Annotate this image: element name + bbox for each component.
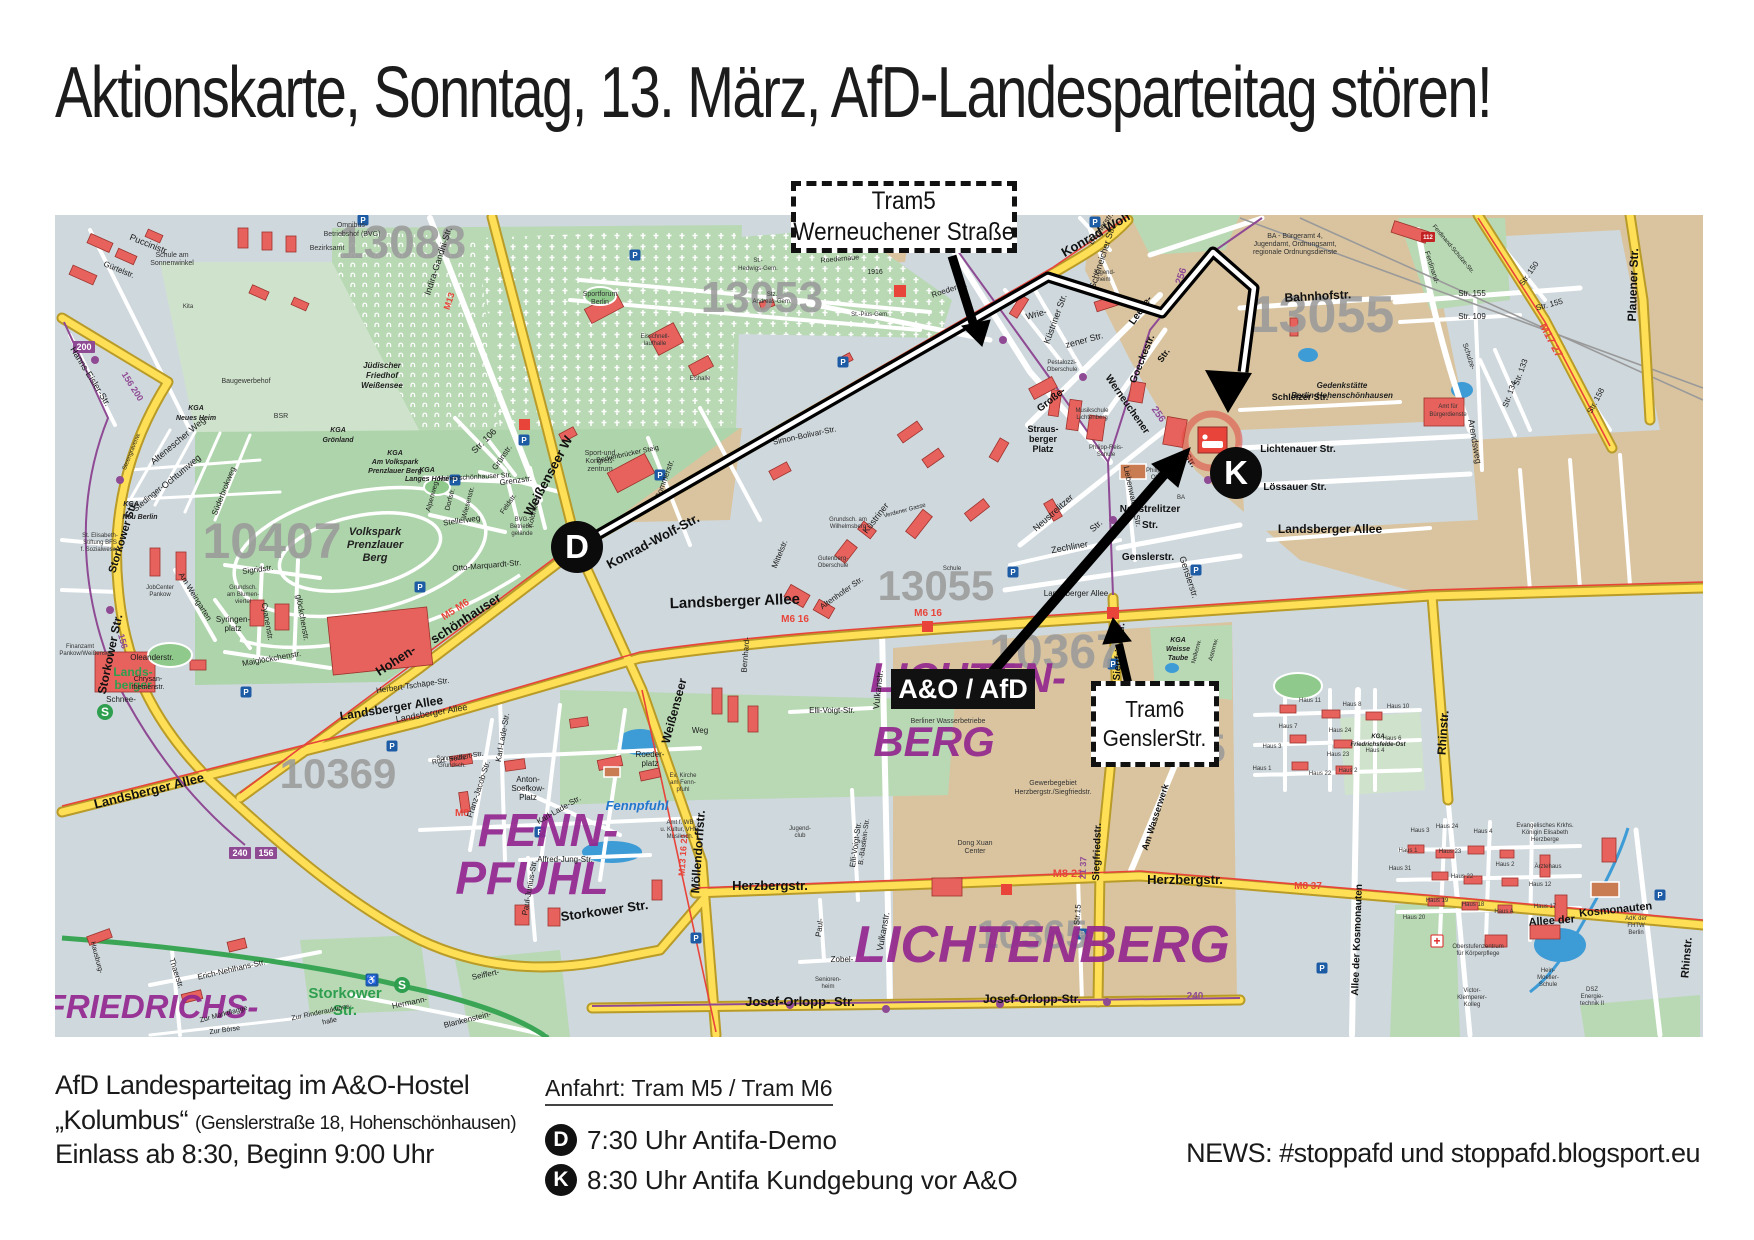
svg-text:Prenzlauer: Prenzlauer [347, 539, 404, 551]
svg-text:Weißensee: Weißensee [361, 381, 403, 390]
svg-text:am Fenn-: am Fenn- [670, 780, 696, 786]
svg-text:Str. 155: Str. 155 [1458, 289, 1486, 298]
svg-text:Taube: Taube [1168, 655, 1188, 662]
svg-text:Weg: Weg [692, 726, 708, 735]
action-map-poster: Aktionskarte, Sonntag, 13. März, AfD-Lan… [0, 0, 1754, 1240]
svg-text:Lichtenauer Str.: Lichtenauer Str. [1260, 444, 1336, 455]
svg-text:Neu Berlin: Neu Berlin [122, 514, 157, 521]
svg-text:Oleanderstr.: Oleanderstr. [130, 653, 174, 662]
svg-text:Pankow: Pankow [149, 592, 171, 598]
svg-text:BERG: BERG [873, 718, 994, 765]
legend-row-kundgebung: K 8:30 Uhr Antifa Kundgebung vor A&O [545, 1164, 1018, 1196]
svg-text:Josef-Orlopp- Str.: Josef-Orlopp- Str. [745, 994, 855, 1009]
svg-text:Pankow/Weißensee: Pankow/Weißensee [59, 651, 113, 657]
svg-text:240: 240 [1187, 991, 1204, 1002]
svg-text:Str.15: Str.15 [1072, 903, 1083, 925]
svg-text:Haus 10: Haus 10 [1387, 704, 1410, 710]
svg-text:Soefkow-: Soefkow- [511, 784, 545, 793]
svg-text:JobCenter: JobCenter [146, 585, 174, 591]
svg-text:Schule: Schule [1539, 982, 1558, 988]
hostel-icon [1198, 427, 1227, 453]
svg-text:Eishalle: Eishalle [689, 376, 711, 382]
route-heading: Anfahrt: Tram M5 / Tram M6 [545, 1075, 833, 1106]
venue-info-line3: Einlass ab 8:30, Beginn 9:00 Uhr [55, 1137, 516, 1172]
svg-text:Evangelisches Krkhs.: Evangelisches Krkhs. [1516, 823, 1574, 829]
svg-text:Finanzamt: Finanzamt [66, 644, 94, 650]
svg-text:Stiftung BFS: Stiftung BFS [83, 540, 117, 546]
venue-info-line2: „Kolumbus“ (Genslerstraße 18, Hohenschön… [55, 1103, 516, 1138]
svg-text:BSR: BSR [274, 413, 288, 420]
venue-info: AfD Landesparteitag im A&O-Hostel „Kolum… [55, 1068, 516, 1172]
svg-text:Musiksch.: Musiksch. [667, 834, 694, 840]
svg-text:Center: Center [964, 848, 986, 855]
svg-text:Anton-: Anton- [516, 775, 540, 784]
svg-text:Haus 8: Haus 8 [1342, 702, 1362, 708]
svg-text:platz: platz [642, 759, 659, 768]
svg-text:Syringen-: Syringen- [216, 615, 251, 624]
svg-text:KGA: KGA [387, 450, 403, 457]
svg-text:gelände: gelände [511, 531, 533, 537]
svg-text:Haus 4: Haus 4 [1473, 829, 1493, 835]
svg-text:am Blumen-: am Blumen- [227, 592, 259, 598]
svg-text:S: S [101, 705, 109, 719]
route-legend: Anfahrt: Tram M5 / Tram M6 D 7:30 Uhr An… [545, 1072, 1018, 1196]
svg-text:Sonnenwinkel: Sonnenwinkel [150, 260, 194, 267]
news-line: NEWS: #stoppafd und stoppafd.blogsport.e… [1186, 1138, 1700, 1169]
svg-text:Landsberger Allee: Landsberger Allee [1278, 522, 1383, 536]
svg-text:Haus 6: Haus 6 [1382, 736, 1402, 742]
svg-text:Philipp-Reis-: Philipp-Reis- [1089, 445, 1123, 451]
svg-text:M6 16: M6 16 [781, 614, 809, 625]
svg-text:P: P [243, 688, 249, 697]
svg-text:Oberschule: Oberschule [818, 563, 849, 569]
svg-text:Volkspark: Volkspark [349, 526, 402, 538]
svg-text:für Körperpflege: für Körperpflege [1456, 951, 1500, 957]
marker-K: K [1210, 447, 1262, 499]
svg-text:Grönland: Grönland [322, 437, 354, 444]
svg-text:Hein-: Hein- [1541, 968, 1555, 974]
svg-text:technik II: technik II [1580, 1001, 1604, 1007]
svg-text:BVG-: BVG- [515, 517, 530, 523]
svg-text:Königin Elisabeth: Königin Elisabeth [1522, 830, 1568, 836]
tram5-stop: Werneuchener Straße [794, 217, 1015, 248]
svg-text:1916: 1916 [867, 269, 883, 276]
svg-text:Haus 23: Haus 23 [1327, 752, 1350, 758]
svg-text:Fennpfuhl: Fennpfuhl [606, 798, 669, 813]
svg-text:f. Sozialwesen: f. Sozialwesen [81, 547, 120, 553]
svg-text:LICHTENBERG: LICHTENBERG [854, 916, 1230, 974]
svg-text:Siegfriedstr.: Siegfriedstr. [1091, 823, 1104, 881]
svg-text:Haus A: Haus A [1494, 909, 1513, 915]
svg-text:Musikschule: Musikschule [1075, 408, 1109, 414]
demo-marker-icon: D [545, 1124, 577, 1156]
svg-text:Haus 3: Haus 3 [1410, 828, 1430, 834]
svg-text:Elli-Voigt-Str.: Elli-Voigt-Str. [809, 706, 855, 715]
svg-text:P: P [840, 358, 846, 367]
svg-text:Oberstufenzentrum: Oberstufenzentrum [1452, 944, 1503, 950]
svg-text:Friedhof: Friedhof [366, 371, 399, 380]
svg-text:platz: platz [225, 624, 242, 633]
svg-text:Oberschule: Oberschule [1047, 367, 1078, 373]
svg-text:Hedwigs-Gem.: Hedwigs-Gem. [738, 266, 778, 272]
svg-text:heim: heim [1097, 277, 1110, 283]
svg-text:Haus 18: Haus 18 [1462, 902, 1485, 908]
svg-text:Berlin: Berlin [591, 299, 609, 306]
svg-text:themenstr.: themenstr. [132, 684, 165, 691]
svg-text:Jugend-: Jugend- [789, 826, 811, 832]
svg-text:St.-Pius-Gem.: St.-Pius-Gem. [851, 312, 889, 318]
svg-text:Plauener Str.: Plauener Str. [1625, 248, 1642, 322]
svg-text:Berliner Wasserbetriebe: Berliner Wasserbetriebe [911, 718, 986, 725]
tram5-line: Tram5 [872, 186, 936, 217]
svg-text:10407: 10407 [202, 513, 341, 569]
svg-text:♿: ♿ [366, 974, 377, 985]
svg-text:Haus 17: Haus 17 [1534, 904, 1557, 910]
svg-text:Haus 12: Haus 12 [1529, 882, 1552, 888]
svg-text:Grundsch.: Grundsch. [229, 585, 257, 591]
svg-text:St.-: St.- [753, 258, 762, 264]
svg-text:Omnibus-: Omnibus- [337, 222, 368, 229]
svg-text:P: P [521, 436, 527, 445]
legend-row-demo: D 7:30 Uhr Antifa-Demo [545, 1124, 1018, 1156]
svg-text:Platz: Platz [519, 793, 537, 802]
svg-text:+: + [1433, 934, 1440, 948]
svg-text:Sportforum: Sportforum [583, 291, 618, 298]
svg-text:Haus 3: Haus 3 [1262, 744, 1282, 750]
svg-text:club: club [794, 833, 806, 839]
svg-text:Weisse: Weisse [1166, 646, 1190, 653]
svg-text:Victor-: Victor- [1463, 988, 1480, 994]
svg-text:Betriebs-: Betriebs- [510, 524, 534, 530]
svg-text:Neues Heim: Neues Heim [176, 415, 216, 422]
svg-text:Schule: Schule [943, 566, 962, 572]
svg-text:D: D [565, 528, 589, 565]
svg-text:Zobel-: Zobel- [831, 955, 854, 964]
svg-text:u. Kultur, VHS,: u. Kultur, VHS, [660, 827, 700, 833]
venue-label: A&O / AfD [891, 669, 1035, 709]
svg-text:Bezirksamt: Bezirksamt [310, 245, 345, 252]
svg-text:Berg: Berg [362, 552, 387, 564]
legend-demo-text: 7:30 Uhr Antifa-Demo [587, 1125, 837, 1156]
svg-text:Haus 22: Haus 22 [1309, 771, 1332, 777]
svg-text:Gewerbegebiet: Gewerbegebiet [1029, 780, 1077, 787]
svg-text:Alfred-Jung-Str.: Alfred-Jung-Str. [537, 855, 593, 864]
svg-text:Kongreß-: Kongreß- [585, 458, 615, 465]
tram6-line: Tram6 [1125, 695, 1184, 724]
svg-text:Sport-und: Sport-und [585, 450, 616, 457]
svg-text:Haus 31: Haus 31 [1389, 866, 1412, 872]
tram5-callout: Tram5 Werneuchener Straße [791, 181, 1017, 253]
svg-text:Amt f. WB: Amt f. WB [667, 820, 694, 826]
svg-text:Haus 19: Haus 19 [1426, 898, 1449, 904]
svg-text:Kolleg: Kolleg [1464, 1002, 1481, 1008]
svg-text:P: P [693, 934, 699, 943]
svg-text:Straus-: Straus- [1027, 424, 1058, 434]
svg-text:P: P [417, 583, 423, 592]
svg-text:Haus 4: Haus 4 [1365, 748, 1385, 754]
tram6-stop: GenslerStr. [1103, 724, 1207, 753]
svg-text:Haus 1: Haus 1 [1252, 766, 1272, 772]
svg-text:heim: heim [821, 984, 834, 990]
svg-text:P: P [632, 251, 638, 260]
svg-text:KGA: KGA [188, 405, 204, 412]
svg-text:KGA: KGA [123, 501, 139, 508]
svg-text:Roeder-: Roeder- [636, 750, 665, 759]
svg-text:Haus 22: Haus 22 [1451, 874, 1474, 880]
svg-text:Jugendamt, Ordnungsamt,: Jugendamt, Ordnungsamt, [1254, 241, 1337, 248]
svg-text:Am Volkspark: Am Volkspark [371, 459, 420, 466]
svg-text:Jugend-: Jugend- [1093, 270, 1115, 276]
svg-text:Baugewerbehof: Baugewerbehof [221, 378, 270, 385]
kundgebung-marker-icon: K [545, 1164, 577, 1196]
svg-text:Schule am: Schule am [155, 252, 188, 259]
svg-text:Schule: Schule [1097, 452, 1116, 458]
svg-text:BA: BA [1177, 495, 1185, 501]
svg-text:Andreas-Gem.: Andreas-Gem. [752, 299, 791, 305]
svg-text:Senioren-: Senioren- [815, 977, 841, 983]
svg-text:21 37: 21 37 [1078, 856, 1089, 879]
svg-text:Chrysan-: Chrysan- [134, 676, 163, 683]
svg-text:Ärztehaus: Ärztehaus [1534, 863, 1561, 870]
svg-text:Ev. Kirche: Ev. Kirche [670, 773, 698, 779]
svg-text:Haus 2: Haus 2 [1495, 862, 1515, 868]
svg-text:FHTW: FHTW [1627, 923, 1645, 929]
svg-text:M6 16: M6 16 [914, 608, 942, 619]
svg-text:pfuhl: pfuhl [676, 787, 689, 793]
svg-text:zentrum: zentrum [587, 466, 612, 473]
page-title: Aktionskarte, Sonntag, 13. März, AfD-Lan… [55, 52, 1491, 134]
svg-text:Haus 24: Haus 24 [1329, 728, 1352, 734]
svg-text:Storkower: Storkower [308, 985, 382, 1002]
svg-text:Schleizer Str.: Schleizer Str. [1272, 392, 1329, 402]
svg-text:berger: berger [1029, 434, 1058, 444]
venue-info-line1: AfD Landesparteitag im A&O-Hostel [55, 1068, 516, 1103]
svg-text:Pestalozzi-: Pestalozzi- [1047, 360, 1076, 366]
svg-text:K: K [1224, 454, 1248, 491]
svg-text:112: 112 [1423, 235, 1433, 241]
svg-text:Klemperer-: Klemperer- [1457, 995, 1487, 1001]
svg-text:Kita: Kita [183, 304, 194, 310]
svg-text:viertel: viertel [235, 599, 251, 605]
svg-text:KGA: KGA [330, 427, 346, 434]
svg-text:laufhalle: laufhalle [644, 341, 667, 347]
svg-text:St. Elisabeth-: St. Elisabeth- [82, 533, 118, 539]
svg-text:Josef-Orlopp-Str.: Josef-Orlopp-Str. [983, 992, 1081, 1006]
svg-text:Haus 7: Haus 7 [1278, 724, 1298, 730]
svg-text:156: 156 [258, 848, 273, 858]
svg-text:Herzbergstr./Siegfriedstr.: Herzbergstr./Siegfriedstr. [1014, 789, 1091, 796]
svg-text:BA - Bürgeramt 4,: BA - Bürgeramt 4, [1267, 233, 1323, 240]
tram6-callout: Tram6 GenslerStr. [1091, 681, 1219, 767]
svg-text:P: P [1010, 568, 1016, 577]
svg-text:240: 240 [232, 848, 247, 858]
svg-text:S: S [398, 978, 406, 992]
svg-text:Lössauer Str.: Lössauer Str. [1263, 482, 1327, 493]
svg-text:Eisschnell-: Eisschnell- [640, 334, 669, 340]
svg-text:13055: 13055 [878, 562, 995, 609]
svg-text:M8 37: M8 37 [1294, 881, 1322, 892]
svg-text:Stz.: Stz. [767, 292, 778, 298]
marker-D: D [551, 521, 603, 573]
map-container: TAXI200240156SS♿+112PPPPPPPPPPPPPPPPPPP … [55, 215, 1703, 1037]
svg-text:Haus 1: Haus 1 [1398, 848, 1418, 854]
svg-text:FRIEDRICHS-: FRIEDRICHS- [55, 988, 258, 1025]
svg-text:Genslerstr.: Genslerstr. [1122, 552, 1174, 563]
svg-text:Prenzlauer Berg: Prenzlauer Berg [368, 468, 422, 475]
svg-text:Energie-: Energie- [1581, 994, 1604, 1000]
svg-text:Herzberge: Herzberge [1531, 837, 1560, 843]
svg-text:Herzbergstr.: Herzbergstr. [732, 878, 808, 893]
svg-text:AdK der: AdK der [1625, 916, 1647, 922]
svg-text:P: P [1657, 891, 1663, 900]
svg-text:Lichtenberg: Lichtenberg [1076, 415, 1107, 421]
svg-text:Amt für: Amt für [1438, 404, 1457, 410]
svg-text:Berlin: Berlin [1628, 930, 1643, 936]
svg-text:Str. 109: Str. 109 [1458, 312, 1486, 321]
svg-text:10369: 10369 [280, 750, 397, 797]
svg-text:Grundsch. am: Grundsch. am [829, 517, 867, 523]
svg-text:regionale Ordnungsdienste: regionale Ordnungsdienste [1253, 249, 1337, 256]
svg-text:Betriebshof (BVG): Betriebshof (BVG) [324, 231, 381, 238]
svg-text:Haus 2: Haus 2 [1338, 768, 1358, 774]
svg-text:Platz: Platz [1032, 444, 1054, 454]
svg-text:13053: 13053 [701, 273, 823, 322]
svg-text:Herzbergstr.: Herzbergstr. [1147, 872, 1223, 887]
svg-text:Dong Xuan: Dong Xuan [957, 840, 992, 847]
svg-text:Haus 11: Haus 11 [1299, 698, 1322, 704]
svg-text:Gedenkstätte: Gedenkstätte [1317, 381, 1368, 390]
svg-text:P: P [1193, 566, 1199, 575]
legend-kundgebung-text: 8:30 Uhr Antifa Kundgebung vor A&O [587, 1165, 1018, 1196]
svg-text:Gutenberg-: Gutenberg- [818, 556, 848, 562]
svg-text:Schnee-: Schnee- [106, 695, 136, 704]
svg-text:KGA: KGA [419, 467, 435, 474]
svg-text:Haus 24: Haus 24 [1436, 824, 1459, 830]
svg-text:Str.: Str. [1142, 520, 1158, 531]
svg-text:Haus 20: Haus 20 [1403, 915, 1426, 921]
svg-text:KGA: KGA [1170, 637, 1186, 644]
svg-text:DSZ: DSZ [1586, 987, 1598, 993]
svg-text:Bürgerdienste: Bürgerdienste [1429, 412, 1467, 418]
city-map: TAXI200240156SS♿+112PPPPPPPPPPPPPPPPPPP … [55, 215, 1703, 1037]
svg-text:P: P [1319, 964, 1325, 973]
svg-text:Haus 23: Haus 23 [1439, 849, 1462, 855]
svg-text:Jüdischer: Jüdischer [363, 361, 402, 370]
svg-text:Moeller-: Moeller- [1537, 975, 1559, 981]
